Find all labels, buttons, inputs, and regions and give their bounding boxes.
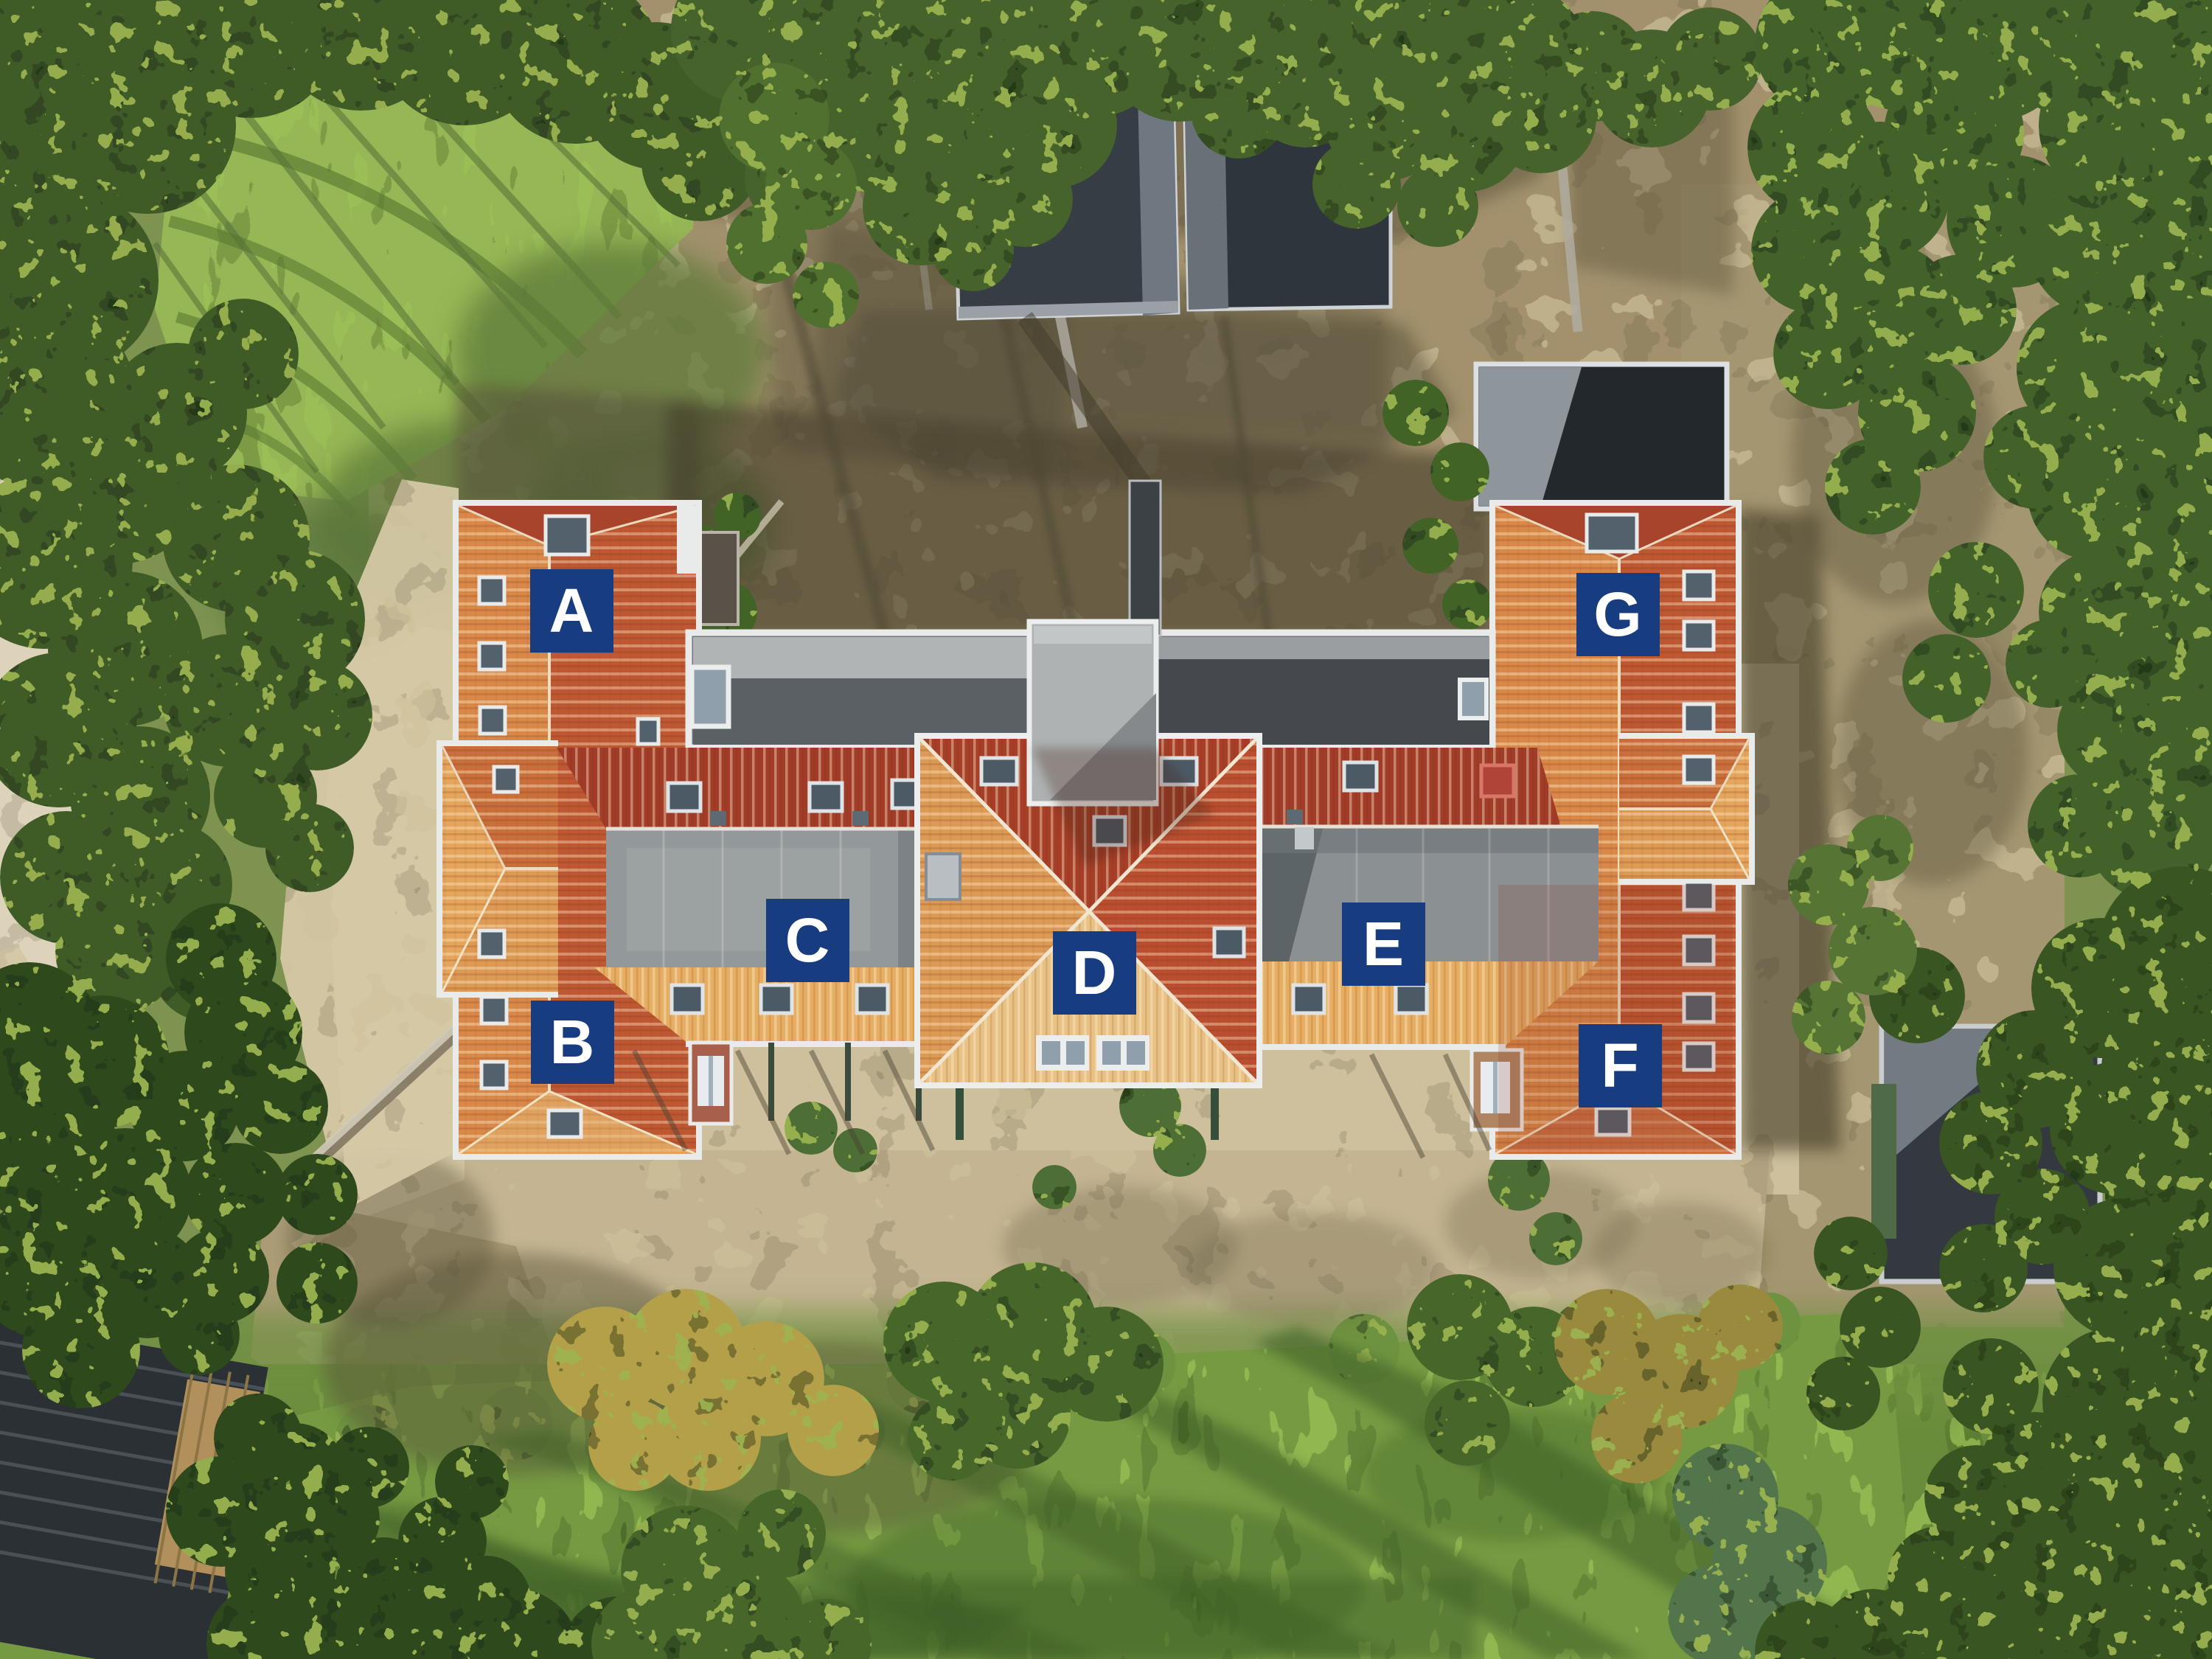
svg-text:D: D — [1072, 938, 1117, 1007]
svg-text:A: A — [549, 576, 594, 645]
svg-text:C: C — [785, 905, 830, 975]
svg-text:B: B — [550, 1007, 595, 1077]
svg-text:G: G — [1593, 580, 1641, 649]
svg-text:F: F — [1601, 1031, 1638, 1100]
svg-text:E: E — [1363, 909, 1404, 978]
